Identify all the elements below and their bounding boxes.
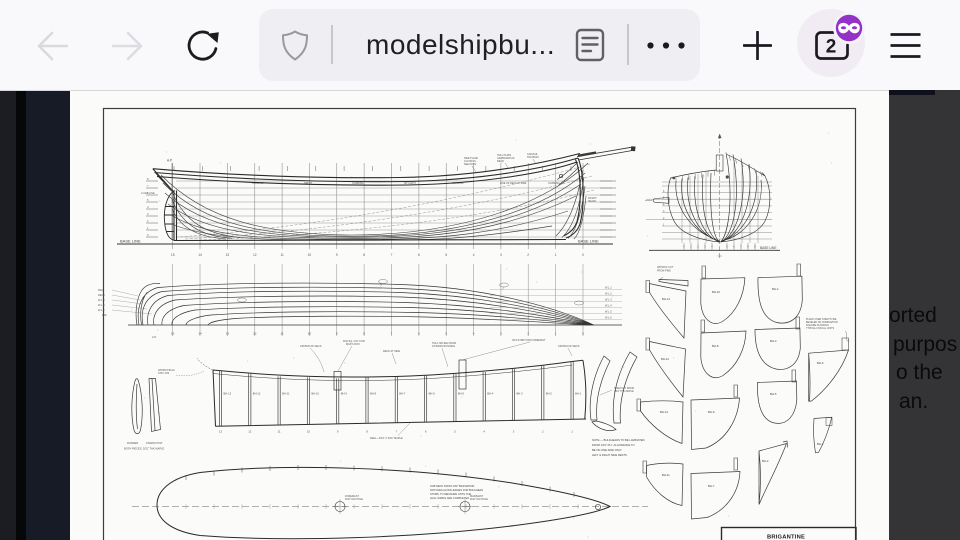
- svg-text:3/32 BASS: 3/32 BASS: [527, 156, 539, 159]
- svg-text:1: 1: [555, 253, 557, 257]
- svg-text:9/32" DIA HOLE: 9/32" DIA HOLE: [345, 498, 363, 501]
- svg-text:STUBS. TO MEASURE UNTIL THE: STUBS. TO MEASURE UNTIL THE: [430, 492, 471, 496]
- svg-text:BH-3: BH-3: [770, 339, 777, 343]
- svg-text:BH-10: BH-10: [712, 290, 720, 294]
- svg-text:BH-3: BH-3: [517, 392, 524, 396]
- svg-text:BH-10: BH-10: [311, 392, 319, 396]
- svg-text:12: 12: [253, 332, 257, 336]
- svg-text:BH-4: BH-4: [487, 392, 494, 396]
- svg-text:9: 9: [754, 246, 756, 249]
- svg-text:8: 8: [363, 332, 365, 336]
- svg-text:BH-2: BH-2: [546, 392, 553, 396]
- svg-text:3: 3: [500, 253, 502, 257]
- svg-text:0: 0: [582, 253, 584, 257]
- svg-text:9: 9: [337, 430, 339, 434]
- svg-text:3/16" THK MAPLE: 3/16" THK MAPLE: [614, 390, 634, 393]
- svg-text:CROWN OF DECK: CROWN OF DECK: [558, 345, 580, 348]
- svg-text:1: 1: [147, 226, 149, 230]
- svg-text:3: 3: [513, 430, 515, 434]
- svg-text:5: 5: [445, 332, 447, 336]
- svg-text:CROWN OF DECK: CROWN OF DECK: [300, 345, 322, 348]
- svg-text:TYPICAL FOR ALL UNITS: TYPICAL FOR ALL UNITS: [806, 327, 835, 330]
- svg-text:8: 8: [366, 430, 368, 434]
- svg-text:BOTH PIECES, 3/32" THK MAPLE: BOTH PIECES, 3/32" THK MAPLE: [124, 447, 164, 451]
- svg-text:13: 13: [226, 253, 230, 257]
- svg-text:A.P.: A.P.: [167, 159, 173, 163]
- svg-text:COAMING: COAMING: [352, 182, 364, 185]
- svg-text:2: 2: [697, 246, 699, 249]
- svg-text:LEFT & RIGHT SIDE RESTS: LEFT & RIGHT SIDE RESTS: [592, 453, 627, 457]
- svg-text:BH-8: BH-8: [370, 392, 377, 396]
- svg-text:1: 1: [690, 246, 692, 249]
- svg-text:11: 11: [281, 332, 284, 336]
- svg-text:6: 6: [418, 253, 420, 257]
- svg-text:RUDDER: RUDDER: [127, 441, 138, 445]
- svg-text:7: 7: [147, 184, 149, 188]
- svg-text:6: 6: [733, 246, 735, 249]
- svg-text:4: 4: [483, 430, 485, 434]
- svg-text:W.L.5: W.L.5: [605, 310, 612, 314]
- svg-text:1: 1: [571, 430, 573, 434]
- svg-text:10: 10: [308, 332, 312, 336]
- svg-text:3: 3: [704, 246, 706, 249]
- svg-text:.: .: [690, 263, 691, 266]
- svg-text:LINE OF DECK AT SIDE: LINE OF DECK AT SIDE: [500, 182, 527, 185]
- svg-text:W.L.6: W.L.6: [605, 316, 612, 320]
- svg-text:BASE LINE: BASE LINE: [120, 239, 141, 244]
- svg-text:9/32" DIA HOLE: 9/32" DIA HOLE: [470, 498, 488, 501]
- svg-text:2: 2: [527, 253, 529, 257]
- svg-text:LOAD LINE: LOAD LINE: [141, 191, 155, 195]
- svg-text:10: 10: [307, 430, 311, 434]
- svg-text:3: 3: [147, 212, 149, 216]
- svg-text:12: 12: [248, 430, 252, 434]
- svg-text:15: 15: [171, 253, 175, 257]
- svg-text:2: 2: [147, 219, 149, 223]
- svg-text:0: 0: [683, 246, 685, 249]
- svg-text:8: 8: [363, 253, 365, 257]
- svg-text:7: 7: [740, 246, 742, 249]
- svg-text:5: 5: [726, 246, 728, 249]
- svg-text:W.L.3: W.L.3: [605, 298, 612, 302]
- svg-text:HEADS: HEADS: [588, 200, 596, 203]
- svg-text:BH-12: BH-12: [661, 357, 669, 361]
- svg-text:HULL SIDING ARE COMPLETED.: HULL SIDING ARE COMPLETED.: [430, 496, 470, 500]
- svg-text:A.P.: A.P.: [152, 335, 157, 339]
- svg-text:BH-13: BH-13: [224, 392, 232, 396]
- svg-text:13: 13: [219, 430, 223, 434]
- svg-text:14: 14: [198, 332, 202, 336]
- svg-text:FROM PINE: FROM PINE: [657, 270, 671, 273]
- svg-text:1: 1: [555, 332, 557, 336]
- svg-text:11: 11: [278, 430, 281, 434]
- svg-text:4: 4: [147, 205, 149, 209]
- svg-text:6: 6: [425, 430, 427, 434]
- svg-text:SUB DECK FROM 1/32" BASSWOOD.: SUB DECK FROM 1/32" BASSWOOD.: [430, 484, 475, 488]
- svg-text:9: 9: [336, 332, 338, 336]
- svg-text:W.L.C: W.L.C: [98, 309, 105, 312]
- svg-text:BE ON ONE SIDE ONLY.: BE ON ONE SIDE ONLY.: [592, 448, 622, 452]
- svg-text:12: 12: [253, 253, 257, 257]
- svg-text:BH-11: BH-11: [282, 392, 290, 396]
- svg-text:13: 13: [226, 332, 230, 336]
- svg-text:4: 4: [473, 253, 475, 257]
- svg-text:BRIGANTINE: BRIGANTINE: [767, 535, 805, 540]
- svg-text:15: 15: [171, 332, 175, 336]
- svg-text:STERN POST: STERN POST: [146, 441, 163, 445]
- svg-text:BASE LINE: BASE LINE: [578, 239, 599, 244]
- svg-text:7: 7: [391, 253, 393, 257]
- svg-text:5: 5: [445, 253, 447, 257]
- svg-text:BH-12: BH-12: [253, 392, 261, 396]
- svg-text:8: 8: [747, 246, 749, 249]
- svg-text:COAMING: COAMING: [548, 182, 560, 185]
- svg-text:BH-2: BH-2: [762, 459, 769, 463]
- svg-text:BH-7: BH-7: [399, 392, 406, 396]
- svg-text:W.L.2: W.L.2: [605, 292, 612, 296]
- svg-text:W.L.4: W.L.4: [605, 304, 612, 308]
- svg-text:7: 7: [391, 332, 393, 336]
- svg-text:SEE NOTE: SEE NOTE: [464, 163, 476, 166]
- svg-text:W.L.A: W.L.A: [98, 299, 105, 302]
- svg-text:KEEL—3/16" X 3/16" MAPLE: KEEL—3/16" X 3/16" MAPLE: [370, 437, 403, 440]
- svg-text:STAY 3/32: STAY 3/32: [158, 372, 170, 375]
- svg-text:5: 5: [454, 430, 456, 434]
- svg-text:BH-1: BH-1: [817, 442, 824, 446]
- svg-text:8: 8: [147, 177, 149, 181]
- svg-text:DECK AT SIDE: DECK AT SIDE: [383, 350, 400, 353]
- svg-text:14: 14: [198, 253, 202, 257]
- svg-text:DECK: DECK: [98, 294, 105, 297]
- svg-text:BH-11: BH-11: [662, 473, 670, 477]
- svg-text:7: 7: [396, 430, 398, 434]
- svg-text:BH-13: BH-13: [660, 410, 668, 414]
- svg-text:5: 5: [147, 198, 149, 202]
- svg-text:BH-8: BH-8: [712, 344, 719, 348]
- svg-text:2: 2: [527, 332, 529, 336]
- svg-text:1/8 BASS RUNNING: 1/8 BASS RUNNING: [432, 345, 455, 348]
- svg-text:BASE LINE: BASE LINE: [760, 246, 776, 250]
- svg-text:BH-9: BH-9: [708, 410, 715, 414]
- svg-text:4: 4: [711, 246, 713, 249]
- svg-text:LWL: LWL: [102, 314, 108, 317]
- svg-text:2: 2: [542, 430, 544, 434]
- svg-text:0: 0: [582, 332, 584, 336]
- svg-text:BH-9: BH-9: [341, 392, 348, 396]
- svg-text:3: 3: [500, 332, 502, 336]
- svg-text:6: 6: [418, 332, 420, 336]
- svg-text:11: 11: [280, 253, 284, 257]
- svg-text:MAST ASSY: MAST ASSY: [346, 343, 360, 346]
- svg-text:NOTE — BULKHEADS TO BE LAMINAT: NOTE — BULKHEADS TO BE LAMINATED: [592, 438, 645, 442]
- svg-text:NOTCHES ALONG EDGES FOR BULKHE: NOTCHES ALONG EDGES FOR BULKHEAD: [430, 488, 483, 492]
- svg-text:FROM 1/16" PLY. ALLOWANCE TO: FROM 1/16" PLY. ALLOWANCE TO: [592, 443, 635, 447]
- svg-text:BH-5: BH-5: [770, 392, 777, 396]
- svg-text:4: 4: [473, 332, 475, 336]
- svg-text:BH-7: BH-7: [708, 484, 715, 488]
- svg-text:BH-4: BH-4: [772, 287, 779, 291]
- svg-text:RAIL: RAIL: [98, 289, 104, 292]
- svg-text:BH-14: BH-14: [662, 297, 670, 301]
- svg-text:BH-5: BH-5: [458, 392, 465, 396]
- svg-text:BH-1: BH-1: [575, 392, 582, 396]
- svg-text:3/16 STRIP FOR FOREMAST: 3/16 STRIP FOR FOREMAST: [512, 339, 546, 342]
- svg-text:W.L.B: W.L.B: [98, 304, 105, 307]
- svg-text:BH-6: BH-6: [817, 361, 824, 365]
- svg-text:9: 9: [336, 253, 338, 257]
- svg-text:KNIGHT: KNIGHT: [588, 198, 597, 200]
- svg-text:10: 10: [308, 253, 312, 257]
- svg-text:BH-6: BH-6: [429, 392, 436, 396]
- svg-text:W.L.1: W.L.1: [605, 286, 612, 290]
- svg-text:0: 0: [147, 233, 149, 237]
- svg-text:REQD: REQD: [497, 160, 504, 163]
